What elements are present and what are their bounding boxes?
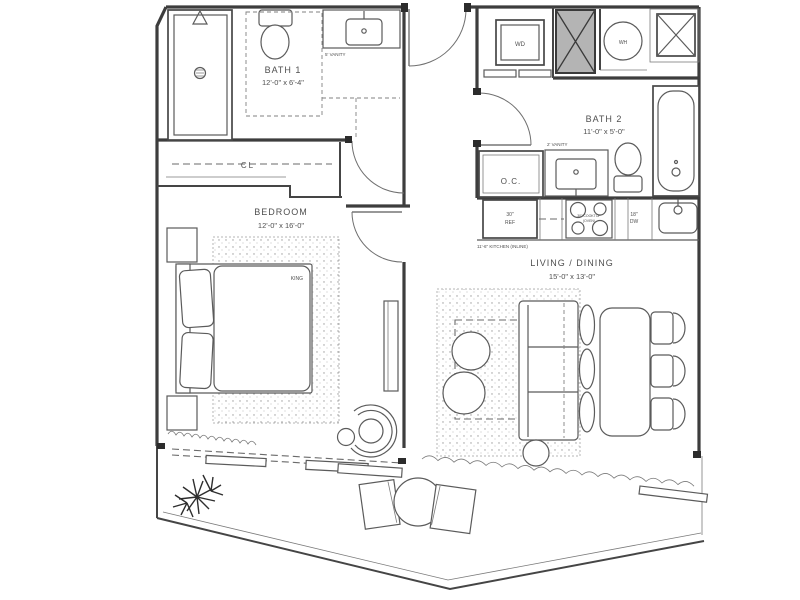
side-table-icon [523,440,549,466]
utility-closet: WD WH [484,9,699,77]
owners-closet: O.C. [479,151,543,197]
sofa-icon [519,301,578,440]
shaft-icon [556,10,595,73]
stool-icon [580,349,595,389]
washer-dryer-icon: WD [484,20,551,77]
shower-icon [168,10,232,140]
bed-icon: KING [176,264,312,393]
bath1-room-label: BATH 1 [265,65,302,75]
vanity-sink-icon [323,10,400,48]
dining-chair-icon [651,312,685,344]
kitchen-sink-icon [659,199,697,233]
water-heater-icon: WH [604,22,642,60]
plant-icon [173,475,223,517]
sliding-door-panel [338,464,402,477]
cooktop-icon: 30" COOKTOP (OVEN) [566,200,612,238]
nightstand-icon [167,396,197,430]
bath1-door-icon [352,141,404,193]
lounge-chair-icon [338,405,397,457]
dishwasher-label: 18" DW [630,212,639,225]
dining-table-icon [600,308,650,436]
equipment-box-icon [650,9,699,62]
dining-chair-icon [651,398,685,430]
patio-chair-icon [430,484,476,533]
owners-closet-label: O.C. [501,177,521,186]
coffee-table-icon [443,372,485,414]
bath2-dims-label: 11'-0" x 5'-0" [583,127,625,136]
balcony [173,475,476,534]
toilet-icon [614,143,642,192]
drapery-icon [168,431,256,445]
fridge-label: REF [505,220,515,226]
svg-text:DW: DW [630,219,639,225]
fridge-width-label: 30" [506,212,514,218]
refrigerator-icon: 30" REF [483,200,537,238]
cooktop-label: 30" COOKTOP [577,214,601,218]
living-dims-label: 15'-0" x 13'-0" [549,272,595,281]
bathtub-icon [653,86,699,196]
sliding-door-panel [206,455,266,466]
kitchen-note-label: 11'-6" KITCHEN (INLINE) [477,244,528,249]
closet-cl: CL [172,161,332,170]
cooktop-label2: (OVEN) [583,219,595,223]
bedroom-room-label: BEDROOM [254,207,308,217]
kitchen: 30" REF 30" COOKTOP (OVEN) 18" DW 11'-6"… [477,198,699,249]
bath2-door-icon [479,93,531,145]
coffee-table-icon [452,332,490,370]
dresser-icon [384,301,398,391]
bath2-room-label: BATH 2 [586,114,623,124]
stool-icon [580,392,595,432]
stool-icon [580,305,595,345]
floor-plan-svg: 5' VANITY BATH 1 12'-0" x 6'-4" CL WD WH [0,0,800,600]
bath2: 2' VANITY BATH 2 11'-0" x 5'-0" O.C. [479,86,699,197]
dining-chair-icon [651,355,685,387]
toilet-icon [259,10,292,59]
living-room-label: LIVING / DINING [530,258,614,268]
floor-plan-page: 5' VANITY BATH 1 12'-0" x 6'-4" CL WD WH [0,0,800,600]
water-heater-label: WH [619,40,628,46]
bath1: 5' VANITY BATH 1 12'-0" x 6'-4" [168,10,400,140]
closet-label: CL [241,161,255,170]
bath1-dims-label: 12'-0" x 6'-4" [262,78,304,87]
svg-text:18": 18" [630,212,638,218]
sliding-door-panel [639,486,707,502]
bedroom-dims-label: 12'-0" x 16'-0" [258,221,304,230]
drapery-icon [422,456,694,486]
bath2-vanity-label: 2' VANITY [547,142,568,147]
washer-dryer-label: WD [515,42,526,48]
vanity-sink-icon [545,150,608,196]
living-dining: LIVING / DINING 15'-0" x 13'-0" [437,258,685,466]
bedroom-door-icon [352,212,402,262]
entry-door-icon [409,9,466,66]
nightstand-icon [167,228,197,262]
bath1-vanity-label: 5' VANITY [325,52,346,57]
bed-size-label: KING [291,276,303,282]
